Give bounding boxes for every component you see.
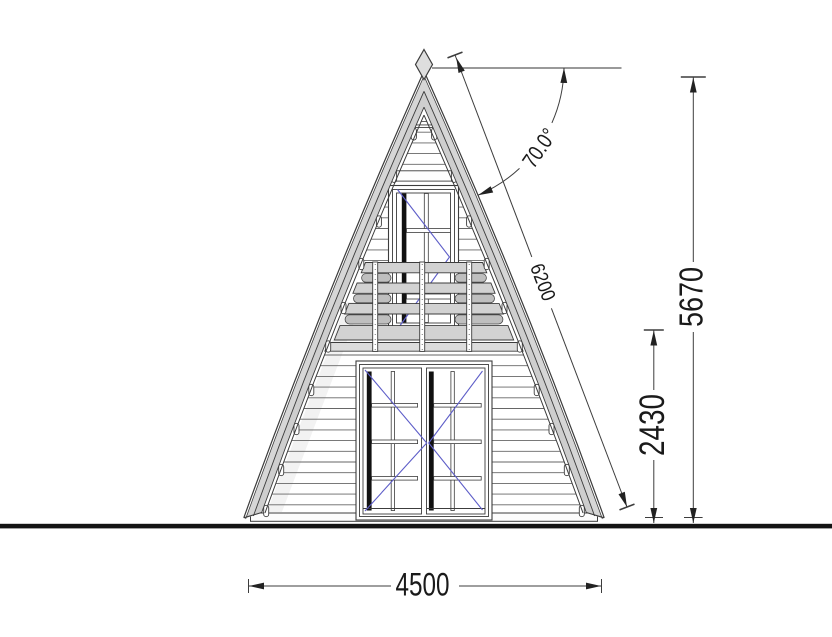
svg-text:2430: 2430: [633, 394, 672, 456]
svg-text:5670: 5670: [673, 267, 710, 327]
svg-text:4500: 4500: [396, 566, 450, 602]
